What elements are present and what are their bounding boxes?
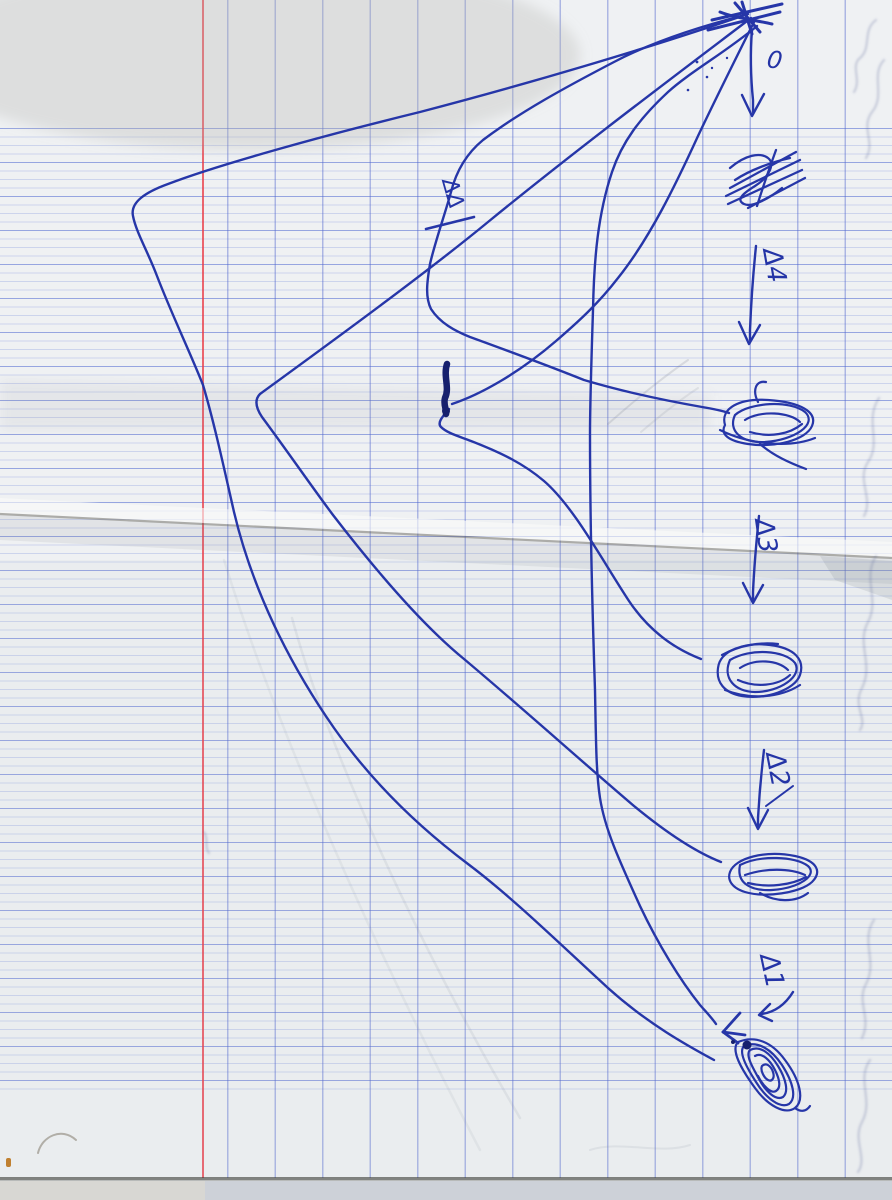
blotch-smear bbox=[444, 364, 447, 414]
label-delta3: Δ3 bbox=[748, 515, 783, 555]
double-delta-strike bbox=[426, 217, 474, 229]
blob-loop bbox=[733, 404, 809, 442]
orange-speck bbox=[6, 1158, 11, 1167]
paper-shading bbox=[0, 0, 892, 1178]
scribble-strike bbox=[730, 152, 796, 188]
ghost-writing-right-1 bbox=[864, 398, 879, 516]
ink-speck bbox=[706, 76, 709, 79]
blob-loop bbox=[750, 424, 802, 435]
blotch-dot bbox=[442, 407, 450, 415]
label-double-delta: ΔΔ bbox=[436, 174, 469, 212]
origin-cluster bbox=[708, 2, 782, 34]
node-blob-1 bbox=[720, 382, 815, 469]
ink-speck bbox=[687, 89, 690, 92]
label-zero: 0 bbox=[765, 45, 784, 75]
blob-loop bbox=[745, 413, 800, 422]
scanned-notebook-page: 0 Δ4 Δ3 Δ2 Δ1 ΔΔ bbox=[0, 0, 892, 1200]
label-delta4: Δ4 bbox=[756, 244, 792, 285]
blob-dark-dot-small bbox=[731, 1040, 735, 1044]
ink-speck bbox=[726, 57, 728, 59]
blob-tail bbox=[760, 444, 806, 469]
scanner-strip-left bbox=[0, 1181, 205, 1200]
ghost-writing-top-right bbox=[854, 20, 876, 92]
paper-bottom-edge-line bbox=[0, 1177, 892, 1181]
ink-sketch-layer: 0 Δ4 Δ3 Δ2 Δ1 ΔΔ bbox=[0, 0, 892, 1200]
top-left-shadow-patch bbox=[0, 0, 580, 150]
arrow-shaft bbox=[751, 30, 753, 112]
mid-shadow-band bbox=[0, 380, 710, 430]
blob-dark-dot bbox=[743, 1041, 752, 1050]
scratched-word bbox=[726, 150, 805, 208]
arrow-zero bbox=[742, 30, 764, 116]
arrow-shaft bbox=[750, 246, 756, 340]
ghost-writing-top-right-2 bbox=[866, 60, 884, 158]
ink-speck bbox=[711, 67, 713, 69]
arrow-delta4 bbox=[739, 246, 760, 344]
